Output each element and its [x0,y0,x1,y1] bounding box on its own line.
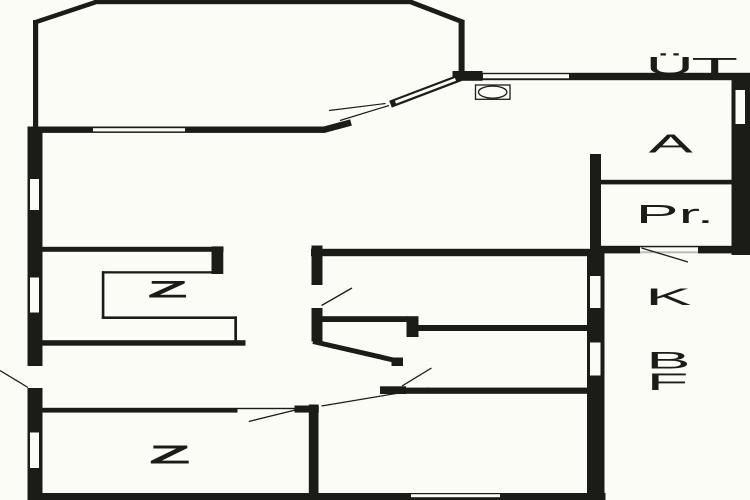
svg-text:Z: Z [147,276,188,303]
svg-text:T: T [691,53,738,80]
svg-text:K: K [645,284,692,311]
svg-text:Z: Z [149,440,191,469]
svg-text:F: F [647,368,689,395]
svg-text:Pr.: Pr. [636,200,715,228]
svg-text:Ü: Ü [646,52,694,80]
svg-text:A: A [649,129,694,158]
